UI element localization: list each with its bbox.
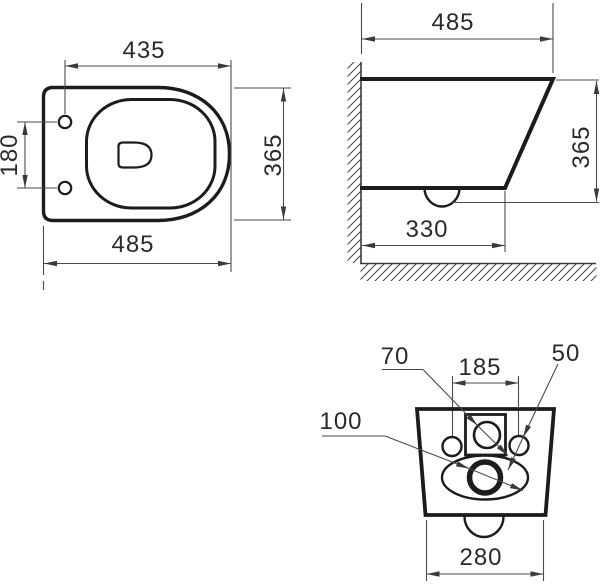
outlet-hole <box>470 462 501 493</box>
fixing-hole-bottom <box>59 182 71 194</box>
dim-label-180: 180 <box>0 133 23 176</box>
dim-label-100: 100 <box>319 408 362 435</box>
side-drain-bump <box>425 188 460 207</box>
dim-label-plan-365: 365 <box>260 133 287 176</box>
dim-label-plan-485: 485 <box>111 231 154 258</box>
dim-label-50: 50 <box>552 340 581 367</box>
floor-hatching <box>361 264 597 282</box>
flush-opening <box>119 143 152 168</box>
dim-label-330: 330 <box>405 216 448 243</box>
wall-hatching <box>348 62 361 263</box>
dim-label-435: 435 <box>122 37 165 64</box>
dim-label-280: 280 <box>459 544 502 571</box>
back-fixing-hole-left <box>443 437 462 456</box>
toilet-side-profile <box>360 79 553 188</box>
toilet-body-outline <box>44 88 230 221</box>
technical-drawing-canvas: 435 180 365 485 485 365 <box>0 0 600 584</box>
dim-label-side-365: 365 <box>568 125 595 168</box>
dim-label-side-485: 485 <box>431 9 474 36</box>
top-view: 435 180 365 485 <box>0 37 291 290</box>
side-view: 485 365 330 <box>348 3 600 281</box>
dim-label-185: 185 <box>458 354 501 381</box>
fixing-hole-top <box>59 116 71 128</box>
back-view: 185 70 50 100 280 <box>319 340 580 581</box>
dim-label-70: 70 <box>381 343 410 370</box>
back-drain-bump <box>465 517 504 538</box>
toilet-dimension-drawing: 435 180 365 485 485 365 <box>0 0 600 584</box>
